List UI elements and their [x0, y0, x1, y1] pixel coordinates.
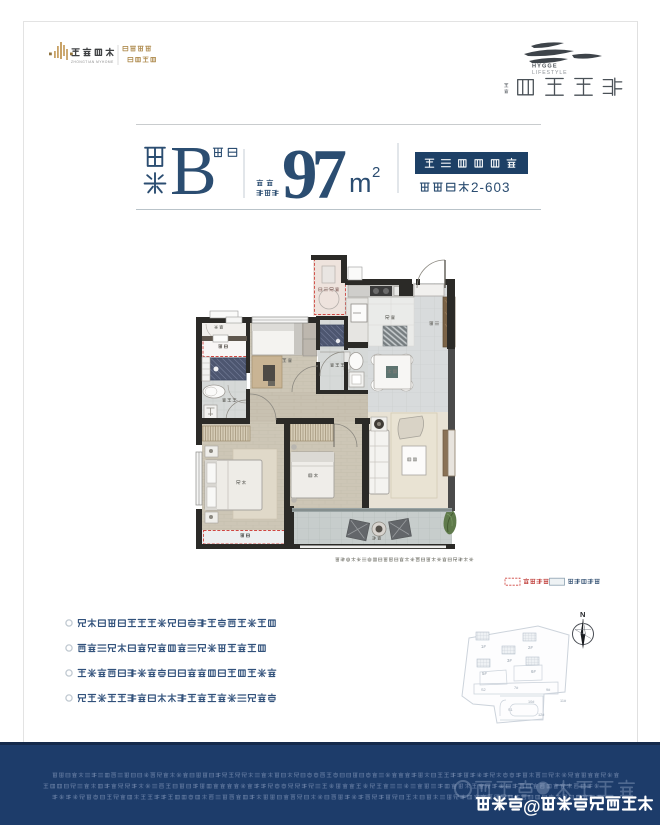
svg-text:6#: 6# [531, 669, 536, 674]
svg-text:S1: S1 [508, 708, 513, 712]
svg-text:11#: 11# [560, 699, 567, 703]
svg-text:3#: 3# [507, 658, 512, 663]
svg-text:S2: S2 [481, 688, 486, 692]
svg-text:2#: 2# [528, 645, 533, 650]
svg-text:N: N [580, 610, 585, 619]
svg-text:LIFESTYLE: LIFESTYLE [532, 70, 568, 76]
svg-text:5#: 5# [482, 671, 487, 676]
svg-text:B: B [170, 133, 217, 208]
svg-text:ZHONGTIAN MYHOME: ZHONGTIAN MYHOME [71, 60, 114, 64]
svg-text:HYGGE: HYGGE [532, 64, 558, 70]
svg-text:97: 97 [282, 136, 347, 208]
svg-text:10#: 10# [528, 700, 535, 704]
svg-text:2-603: 2-603 [471, 180, 511, 194]
svg-text:@: @ [523, 797, 541, 817]
svg-text:m: m [349, 168, 372, 198]
svg-text:2: 2 [372, 164, 380, 181]
svg-text:1#: 1# [481, 644, 486, 649]
svg-text:12#: 12# [538, 713, 545, 717]
